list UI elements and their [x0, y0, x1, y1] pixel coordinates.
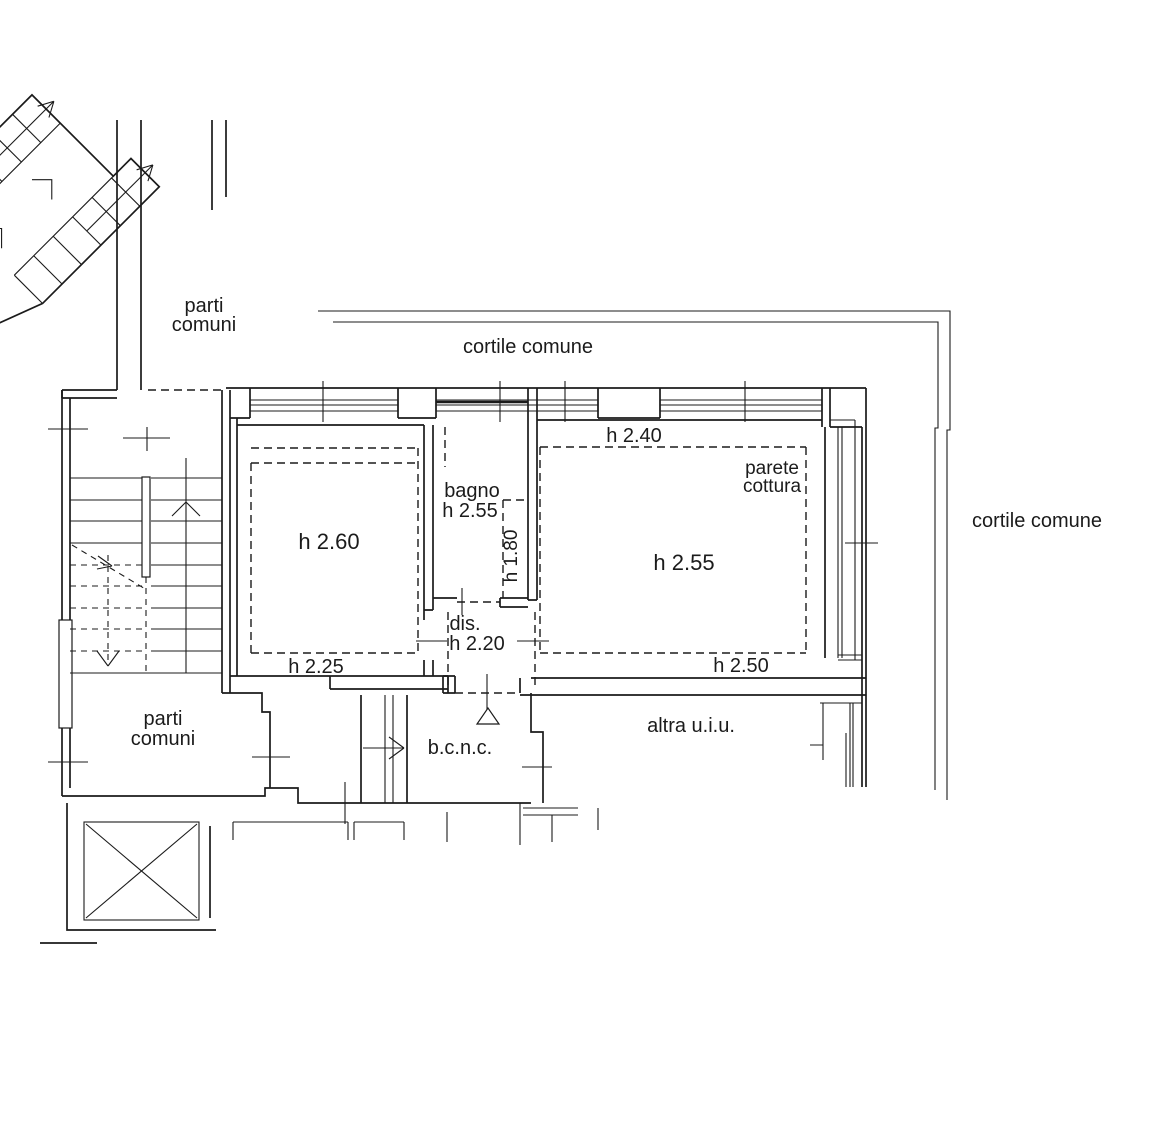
label-dis: dis. — [449, 613, 480, 635]
label-altra-uiu: altra u.i.u. — [647, 715, 735, 737]
label-bagno-h-255: h 2.55 — [442, 500, 498, 522]
floorplan-page: particomunicortile comunecortile comuneh… — [0, 0, 1170, 1129]
wall-window — [59, 620, 72, 728]
label-parete-cottura-2: cottura — [743, 476, 802, 497]
label-h-180: h 1.80 — [501, 530, 522, 583]
label-h-260: h 2.60 — [298, 529, 359, 554]
label-cortile-comune-right: cortile comune — [972, 510, 1102, 532]
label-h-220: h 2.20 — [449, 633, 505, 655]
label-h-255: h 2.55 — [653, 550, 714, 575]
label-parti-comuni-top-2: comuni — [172, 314, 236, 336]
label-bcnc: b.c.n.c. — [428, 737, 492, 759]
label-h-250: h 2.50 — [713, 655, 769, 677]
stair-railing — [142, 477, 150, 577]
label-parti-comuni-bottom-2: comuni — [131, 728, 195, 750]
label-bagno: bagno — [444, 480, 500, 502]
label-parti-comuni-bottom-1: parti — [144, 708, 183, 730]
label-h-240: h 2.40 — [606, 425, 662, 447]
label-cortile-comune-top: cortile comune — [463, 336, 593, 358]
label-h-225: h 2.25 — [288, 656, 344, 678]
floorplan-canvas: particomunicortile comunecortile comuneh… — [0, 0, 1170, 1129]
